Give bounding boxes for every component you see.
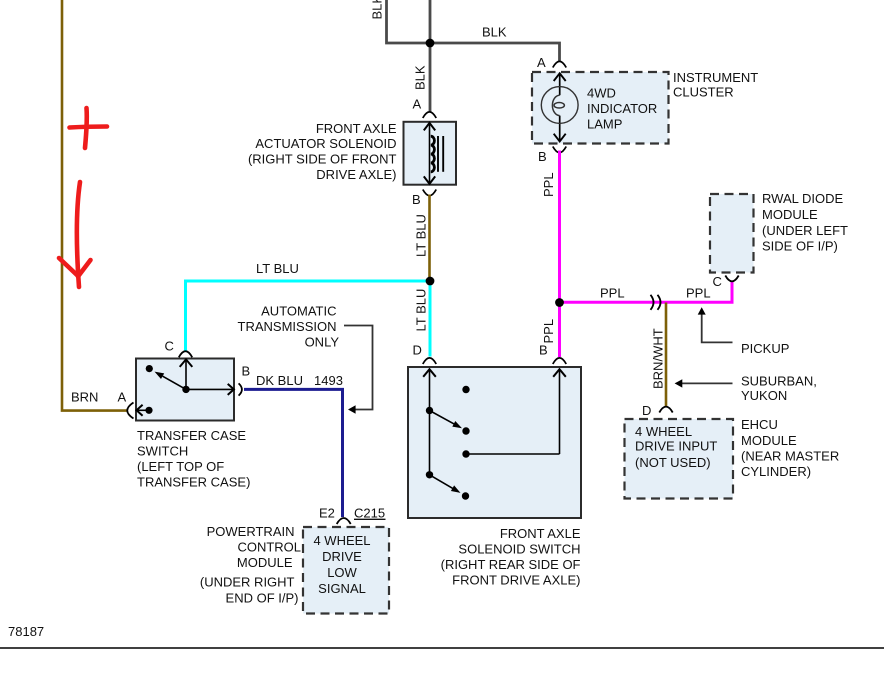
svg-text:ACTUATOR SOLENOID: ACTUATOR SOLENOID xyxy=(255,136,396,151)
svg-text:TRANSMISSION: TRANSMISSION xyxy=(238,319,337,334)
svg-text:SIGNAL: SIGNAL xyxy=(318,581,366,596)
svg-text:4 WHEEL: 4 WHEEL xyxy=(635,424,692,439)
svg-text:FRONT AXLE: FRONT AXLE xyxy=(500,526,581,541)
svg-text:A: A xyxy=(537,55,546,70)
svg-text:FRONT DRIVE AXLE): FRONT DRIVE AXLE) xyxy=(452,573,580,588)
svg-text:A: A xyxy=(118,390,127,405)
svg-text:SIDE OF I/P): SIDE OF I/P) xyxy=(762,239,838,254)
svg-text:POWERTRAIN: POWERTRAIN xyxy=(207,524,295,539)
svg-text:D: D xyxy=(642,403,651,418)
svg-text:PPL: PPL xyxy=(686,286,711,301)
svg-text:TRANSFER CASE: TRANSFER CASE xyxy=(137,428,246,443)
svg-text:LAMP: LAMP xyxy=(587,116,622,131)
svg-text:78187: 78187 xyxy=(8,624,44,639)
svg-text:TRANSFER CASE): TRANSFER CASE) xyxy=(137,475,250,490)
svg-text:C215: C215 xyxy=(354,505,385,520)
svg-text:DRIVE INPUT: DRIVE INPUT xyxy=(635,439,717,454)
svg-text:(RIGHT SIDE OF FRONT: (RIGHT SIDE OF FRONT xyxy=(248,152,397,167)
svg-text:RWAL DIODE: RWAL DIODE xyxy=(762,191,843,206)
svg-text:INSTRUMENT: INSTRUMENT xyxy=(673,70,758,85)
svg-text:MODULE: MODULE xyxy=(762,207,818,222)
svg-text:MODULE: MODULE xyxy=(741,433,797,448)
svg-text:YUKON: YUKON xyxy=(741,388,787,403)
svg-text:LT BLU: LT BLU xyxy=(414,289,429,332)
svg-text:B: B xyxy=(242,364,251,379)
svg-text:ONLY: ONLY xyxy=(305,334,340,349)
svg-text:(UNDER RIGHT: (UNDER RIGHT xyxy=(200,574,295,589)
svg-text:B: B xyxy=(539,343,548,358)
svg-text:PPL: PPL xyxy=(600,286,625,301)
svg-text:LOW: LOW xyxy=(327,565,357,580)
svg-text:C: C xyxy=(165,339,174,354)
svg-text:CYLINDER): CYLINDER) xyxy=(741,464,811,479)
svg-text:LT BLU: LT BLU xyxy=(256,261,299,276)
svg-text:EHCU: EHCU xyxy=(741,417,778,432)
svg-text:DRIVE: DRIVE xyxy=(322,549,362,564)
svg-text:CLUSTER: CLUSTER xyxy=(673,85,734,100)
svg-text:E2: E2 xyxy=(319,506,335,521)
svg-text:BLK: BLK xyxy=(413,65,428,90)
svg-text:1493: 1493 xyxy=(314,373,343,388)
svg-text:PPL: PPL xyxy=(541,319,556,344)
svg-text:MODULE: MODULE xyxy=(237,555,293,570)
svg-text:FRONT AXLE: FRONT AXLE xyxy=(316,121,397,136)
svg-text:SOLENOID SWITCH: SOLENOID SWITCH xyxy=(458,542,580,557)
svg-text:DRIVE AXLE): DRIVE AXLE) xyxy=(316,167,396,182)
svg-text:A: A xyxy=(413,97,422,112)
svg-text:BLK: BLK xyxy=(482,25,507,40)
svg-text:LT BLU: LT BLU xyxy=(414,214,429,257)
svg-text:BRN/WHT: BRN/WHT xyxy=(651,328,666,389)
svg-text:END OF I/P): END OF I/P) xyxy=(226,591,299,606)
svg-text:(NEAR MASTER: (NEAR MASTER xyxy=(741,449,839,464)
svg-text:(NOT USED): (NOT USED) xyxy=(635,455,711,470)
svg-text:(LEFT TOP OF: (LEFT TOP OF xyxy=(137,459,224,474)
svg-text:B: B xyxy=(412,192,421,207)
svg-text:4WD: 4WD xyxy=(587,86,616,101)
svg-text:B: B xyxy=(538,149,547,164)
svg-text:BRN: BRN xyxy=(71,390,98,405)
svg-text:DK BLU: DK BLU xyxy=(256,373,303,388)
svg-text:4 WHEEL: 4 WHEEL xyxy=(313,533,370,548)
svg-text:SWITCH: SWITCH xyxy=(137,444,188,459)
svg-text:(UNDER LEFT: (UNDER LEFT xyxy=(762,223,848,238)
svg-text:INDICATOR: INDICATOR xyxy=(587,101,657,116)
svg-text:BLK: BLK xyxy=(370,0,385,20)
svg-text:PPL: PPL xyxy=(541,172,556,197)
svg-text:SUBURBAN,: SUBURBAN, xyxy=(741,374,817,389)
svg-text:C: C xyxy=(713,274,722,289)
svg-text:D: D xyxy=(413,343,422,358)
svg-text:(RIGHT REAR SIDE OF: (RIGHT REAR SIDE OF xyxy=(441,557,581,572)
svg-text:CONTROL: CONTROL xyxy=(237,540,301,555)
svg-text:AUTOMATIC: AUTOMATIC xyxy=(261,304,336,319)
svg-text:PICKUP: PICKUP xyxy=(741,341,789,356)
